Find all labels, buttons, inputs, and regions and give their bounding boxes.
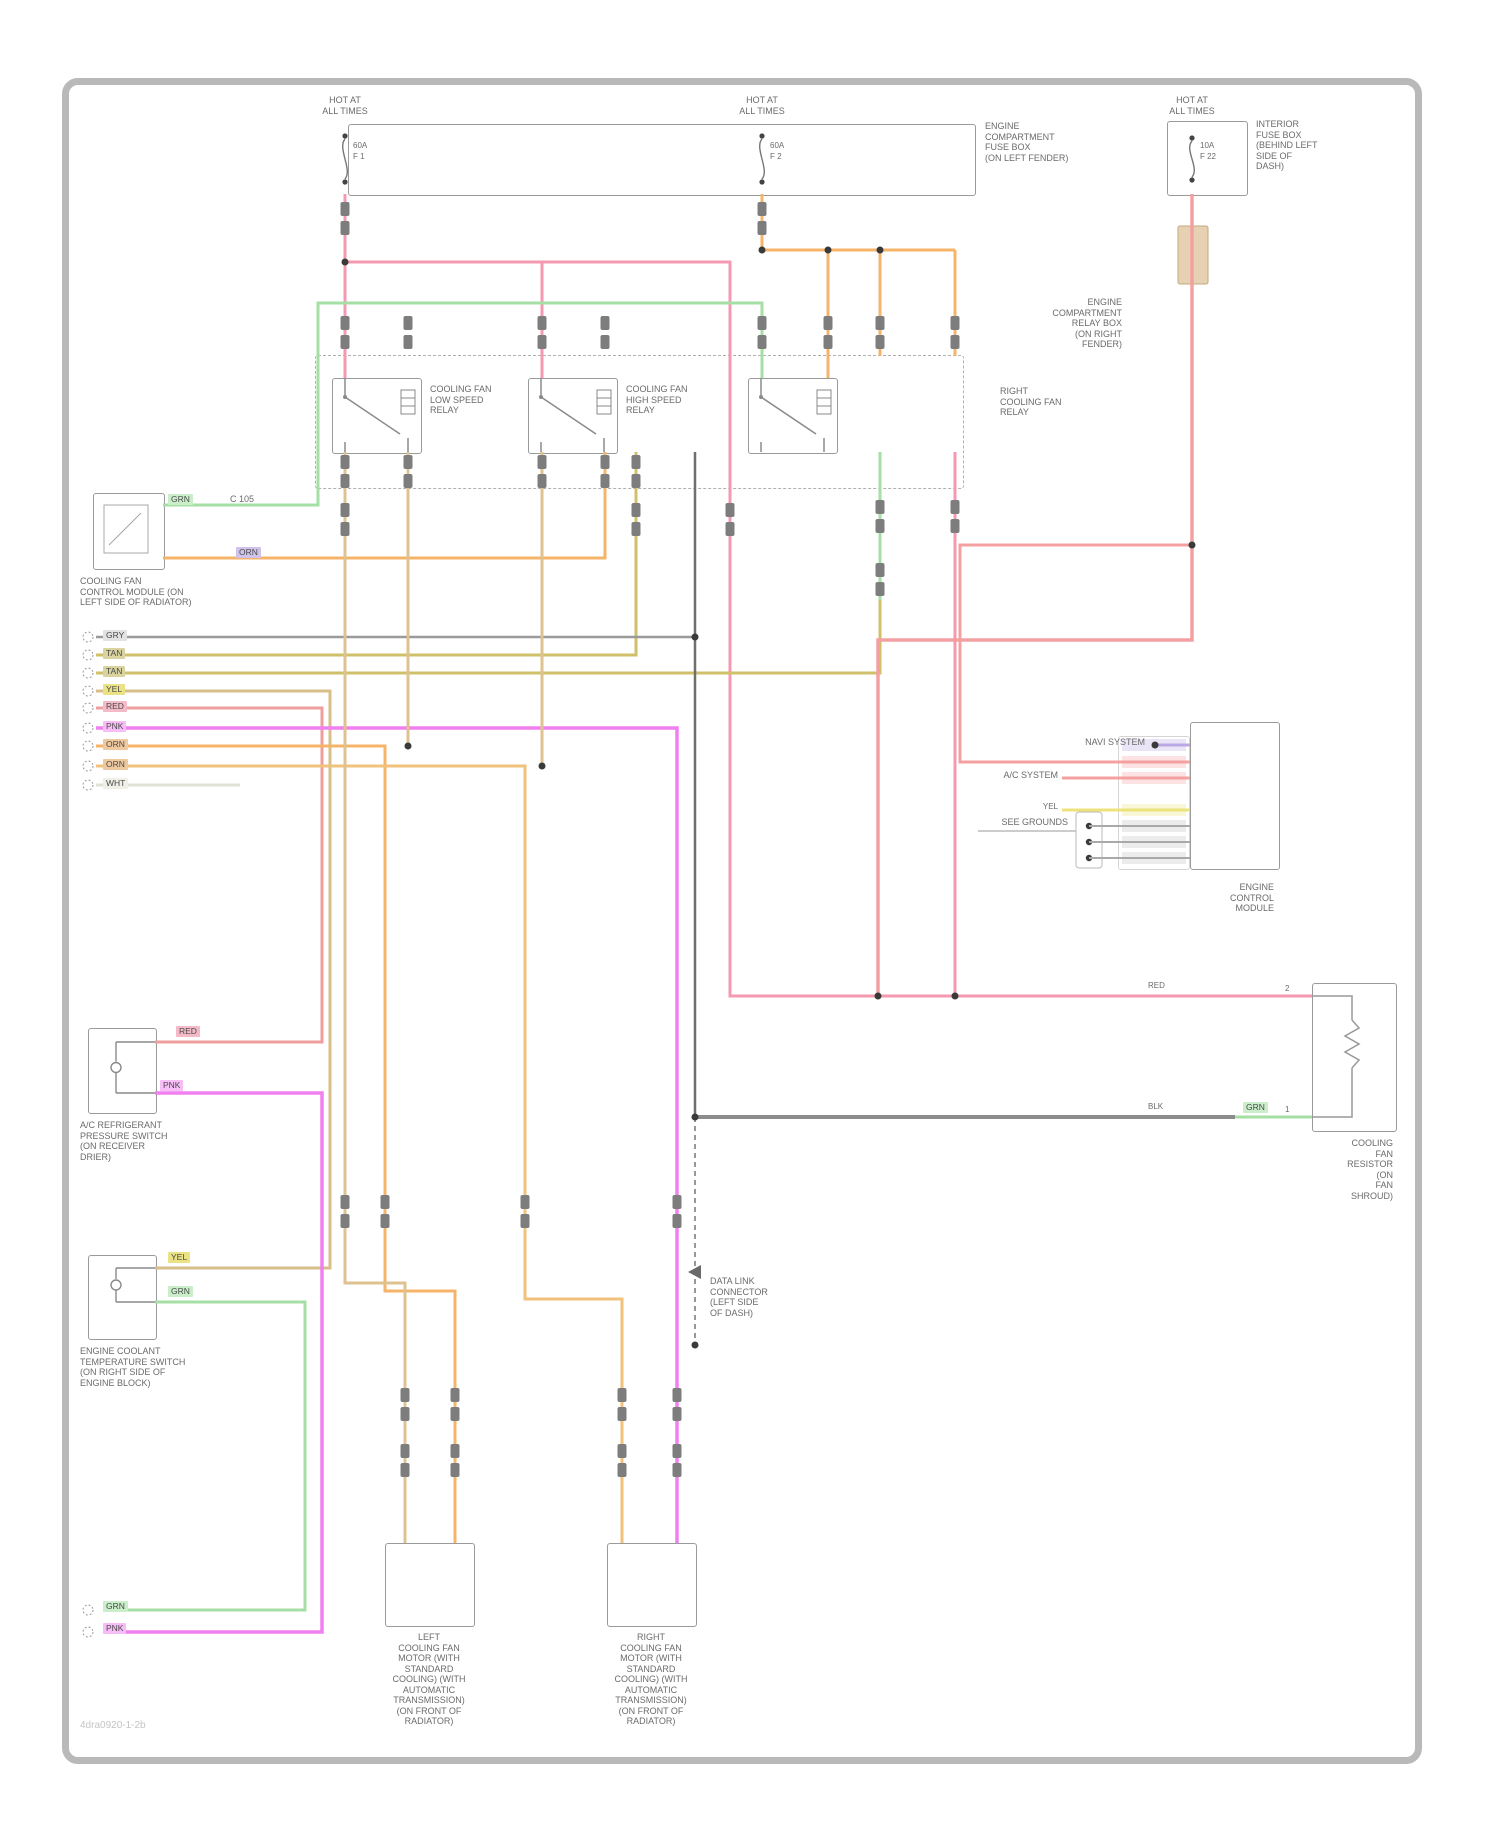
label-fan-control-module-label: COOLING FANCONTROL MODULE (ONLEFT SIDE O… [80, 576, 192, 608]
label-resistor-grn-label: GRN [1243, 1102, 1268, 1114]
label-line: ENGINE BLOCK) [80, 1378, 185, 1389]
label-pressure-red-label: RED [176, 1026, 200, 1037]
wire-color-tag: RED [176, 1026, 200, 1037]
label-line: MOTOR (WITH [607, 1653, 695, 1664]
label-relay-3-label: RIGHTCOOLING FANRELAY [1000, 386, 1062, 418]
label-temp-switch-label: ENGINE COOLANTTEMPERATURE SWITCH(ON RIGH… [80, 1346, 185, 1388]
label-line: CONNECTOR [710, 1287, 768, 1298]
label-line: COMPARTMENT [1022, 308, 1122, 319]
label-line: SHROUD) [1305, 1191, 1393, 1202]
label-line: CONTROL [1178, 893, 1274, 904]
wire-color-tag: ORN [103, 739, 128, 750]
label-resistor-red-label: RED [1148, 981, 1165, 992]
label-pin1-label: GRY [103, 630, 127, 641]
label-line: CONTROL MODULE (ON [80, 587, 192, 598]
label-line: COOLING FAN [385, 1643, 473, 1654]
label-relay-box-label: ENGINECOMPARTMENTRELAY BOX(ON RIGHTFENDE… [1022, 297, 1122, 350]
label-grounds-label: SEE GROUNDS [968, 817, 1068, 828]
box-ac-pressure-switch [88, 1028, 157, 1114]
label-fan-resistor-label: COOLINGFANRESISTOR(ONFANSHROUD) [1305, 1138, 1393, 1201]
label-pin4-label: YEL [103, 684, 125, 695]
label-line: COOLING FAN [626, 384, 688, 395]
label-line: AUTOMATIC [607, 1685, 695, 1696]
label-line: FAN [1305, 1180, 1393, 1191]
label-line: (ON [1305, 1170, 1393, 1181]
label-line: (ON RECEIVER [80, 1141, 168, 1152]
label-left-fan-label: LEFTCOOLING FANMOTOR (WITHSTANDARDCOOLIN… [385, 1632, 473, 1727]
label-line: (LEFT SIDE [710, 1297, 768, 1308]
label-pressure-switch-label: A/C REFRIGERANTPRESSURE SWITCH(ON RECEIV… [80, 1120, 168, 1162]
label-line: (ON RIGHT SIDE OF [80, 1367, 185, 1378]
box-relay-2 [528, 378, 618, 454]
label-line: PRESSURE SWITCH [80, 1131, 168, 1142]
wire-color-tag: GRN [168, 1286, 193, 1297]
label-line: 60A [770, 141, 784, 152]
wire-color-tag: GRN [103, 1601, 128, 1612]
label-line: FUSE BOX [1256, 130, 1318, 141]
label-line: RIGHT [1000, 386, 1062, 397]
wire-color-tag: RED [103, 701, 127, 712]
label-right-fan-label: RIGHTCOOLING FANMOTOR (WITHSTANDARDCOOLI… [607, 1632, 695, 1727]
label-temp-yel-label: YEL [168, 1252, 190, 1263]
label-line: A/C SYSTEM [958, 770, 1058, 781]
label-line: 60A [353, 141, 367, 152]
label-relay-2-label: COOLING FANHIGH SPEEDRELAY [626, 384, 688, 416]
wire-color-tag: PNK [103, 721, 126, 732]
label-line: YEL [1000, 802, 1058, 813]
label-line: COOLING) (WITH [385, 1674, 473, 1685]
label-line: LEFT [385, 1632, 473, 1643]
wire-color-tag: GRY [103, 630, 127, 641]
label-line: COOLING [1305, 1138, 1393, 1149]
box-relay-1 [332, 378, 422, 454]
label-resistor-blk-label: BLK [1148, 1102, 1163, 1113]
label-splice-label: DATA LINKCONNECTOR(LEFT SIDEOF DASH) [710, 1276, 768, 1318]
wire-color-tag: YEL [168, 1252, 190, 1263]
box-left-fan-motor [385, 1543, 475, 1627]
label-wire-orn-label: ORN [236, 547, 261, 558]
label-line: HOT AT [1152, 95, 1232, 106]
label-line: TEMPERATURE SWITCH [80, 1357, 185, 1368]
wire-color-tag: ORN [236, 547, 261, 558]
label-line: COMPARTMENT [985, 132, 1068, 143]
label-interior-fuse-box-label: INTERIORFUSE BOX(BEHIND LEFTSIDE OFDASH) [1256, 119, 1318, 172]
label-line: COOLING) (WITH [607, 1674, 695, 1685]
label-ground-grn-label: GRN [103, 1601, 128, 1612]
label-line: (BEHIND LEFT [1256, 140, 1318, 151]
label-line: HIGH SPEED [626, 395, 688, 406]
label-line: ENGINE [1022, 297, 1122, 308]
label-line: RADIATOR) [385, 1716, 473, 1727]
label-fuse-1-label: 60AF 1 [353, 141, 367, 162]
label-line: RELAY [626, 405, 688, 416]
wiring-diagram-page: HOT ATALL TIMESHOT ATALL TIMESHOT ATALL … [0, 0, 1500, 1828]
label-line: COOLING FAN [607, 1643, 695, 1654]
label-line: RELAY [1000, 407, 1062, 418]
label-line: F 1 [353, 152, 367, 163]
label-line: MOTOR (WITH [385, 1653, 473, 1664]
label-hot-label-2: HOT ATALL TIMES [722, 95, 802, 116]
label-ground-pnk-label: PNK [103, 1623, 126, 1634]
label-engine-module-label: ENGINECONTROLMODULE [1178, 882, 1274, 914]
label-line: RELAY BOX [1022, 318, 1122, 329]
label-line: OF DASH) [710, 1308, 768, 1319]
wire-color-tag: TAN [103, 666, 125, 677]
label-line: ALL TIMES [305, 106, 385, 117]
box-engine-fuse-box [348, 124, 976, 196]
label-line: ALL TIMES [722, 106, 802, 117]
label-pin3-label: TAN [103, 666, 125, 677]
label-line: STANDARD [385, 1664, 473, 1675]
label-line: 1 [1285, 1105, 1289, 1116]
label-line: RIGHT [607, 1632, 695, 1643]
label-line: COOLING FAN [80, 576, 192, 587]
label-engine-fuse-box-label: ENGINECOMPARTMENTFUSE BOX(ON LEFT FENDER… [985, 121, 1068, 163]
label-line: MODULE [1178, 903, 1274, 914]
label-line: ENGINE [1178, 882, 1274, 893]
box-coolant-temp-switch [88, 1255, 157, 1340]
wire-color-tag: PNK [160, 1080, 183, 1091]
label-line: SEE GROUNDS [968, 817, 1068, 828]
label-line: DATA LINK [710, 1276, 768, 1287]
label-line: HOT AT [305, 95, 385, 106]
label-line: F 2 [770, 152, 784, 163]
label-line: DRIER) [80, 1152, 168, 1163]
label-pin9-label: WHT [103, 778, 128, 789]
box-module-connector-grid [1118, 736, 1190, 870]
label-line: DASH) [1256, 161, 1318, 172]
label-pin6-label: PNK [103, 721, 126, 732]
label-line: FUSE BOX [985, 142, 1068, 153]
label-line: (ON LEFT FENDER) [985, 153, 1068, 164]
wire-color-tag: GRN [168, 494, 193, 505]
label-fuse-2-label: 60AF 2 [770, 141, 784, 162]
label-line: TRANSMISSION) [385, 1695, 473, 1706]
label-line: A/C REFRIGERANT [80, 1120, 168, 1131]
label-pin5-label: RED [103, 701, 127, 712]
label-line: COOLING FAN [430, 384, 492, 395]
diagram-frame [62, 78, 1422, 1764]
label-line: COOLING FAN [1000, 397, 1062, 408]
box-relay-3 [748, 378, 838, 454]
label-hot-label-1: HOT ATALL TIMES [305, 95, 385, 116]
label-line: C 105 [230, 494, 254, 505]
label-pin8-label: ORN [103, 759, 128, 770]
box-fan-control-module [93, 493, 165, 570]
label-line: NAVI SYSTEM [1045, 737, 1145, 748]
label-line: RESISTOR [1305, 1159, 1393, 1170]
wire-color-tag: GRN [1243, 1102, 1268, 1113]
label-ac-system-label: A/C SYSTEM [958, 770, 1058, 781]
label-line: AUTOMATIC [385, 1685, 473, 1696]
box-fan-resistor-box [1312, 983, 1397, 1132]
label-line: ALL TIMES [1152, 106, 1232, 117]
label-line: RELAY [430, 405, 492, 416]
label-line: (ON FRONT OF [607, 1706, 695, 1717]
label-line: SIDE OF [1256, 151, 1318, 162]
label-line: TRANSMISSION) [607, 1695, 695, 1706]
box-right-fan-motor [607, 1543, 697, 1627]
label-line: FAN [1305, 1149, 1393, 1160]
label-temp-grn-label: GRN [168, 1286, 193, 1297]
label-line: 10A [1200, 141, 1216, 152]
label-pressure-pnk-label: PNK [160, 1080, 183, 1091]
label-pin7-label: ORN [103, 739, 128, 750]
label-line: RED [1148, 981, 1165, 992]
label-line: F 22 [1200, 152, 1216, 163]
diagram-id-footer: 4dra0920-1-2b [80, 1720, 146, 1731]
label-line: ENGINE [985, 121, 1068, 132]
label-line: ENGINE COOLANT [80, 1346, 185, 1357]
label-resistor-pin2-label: 2 [1285, 984, 1289, 995]
label-line: RADIATOR) [607, 1716, 695, 1727]
label-pin2-label: TAN [103, 648, 125, 659]
label-navi-system-label: NAVI SYSTEM [1045, 737, 1145, 748]
box-engine-control-module [1190, 722, 1280, 870]
label-line: STANDARD [607, 1664, 695, 1675]
label-relay-1-label: COOLING FANLOW SPEEDRELAY [430, 384, 492, 416]
label-conn-c105-label: C 105 [230, 494, 254, 505]
label-hot-label-3: HOT ATALL TIMES [1152, 95, 1232, 116]
wire-color-tag: TAN [103, 648, 125, 659]
label-line: INTERIOR [1256, 119, 1318, 130]
label-line: (ON RIGHT [1022, 329, 1122, 340]
label-line: BLK [1148, 1102, 1163, 1113]
wire-color-tag: WHT [103, 778, 128, 789]
label-fuse-3-label: 10AF 22 [1200, 141, 1216, 162]
label-line: 2 [1285, 984, 1289, 995]
wire-color-tag: PNK [103, 1623, 126, 1634]
wire-color-tag: ORN [103, 759, 128, 770]
label-line: FENDER) [1022, 339, 1122, 350]
label-resistor-pin1-label: 1 [1285, 1105, 1289, 1116]
label-line: HOT AT [722, 95, 802, 106]
label-line: (ON FRONT OF [385, 1706, 473, 1717]
label-line: LOW SPEED [430, 395, 492, 406]
label-line: LEFT SIDE OF RADIATOR) [80, 597, 192, 608]
label-wire-grn-label: GRN [168, 494, 193, 505]
label-yel-row-label: YEL [1000, 802, 1058, 813]
wire-color-tag: YEL [103, 684, 125, 695]
